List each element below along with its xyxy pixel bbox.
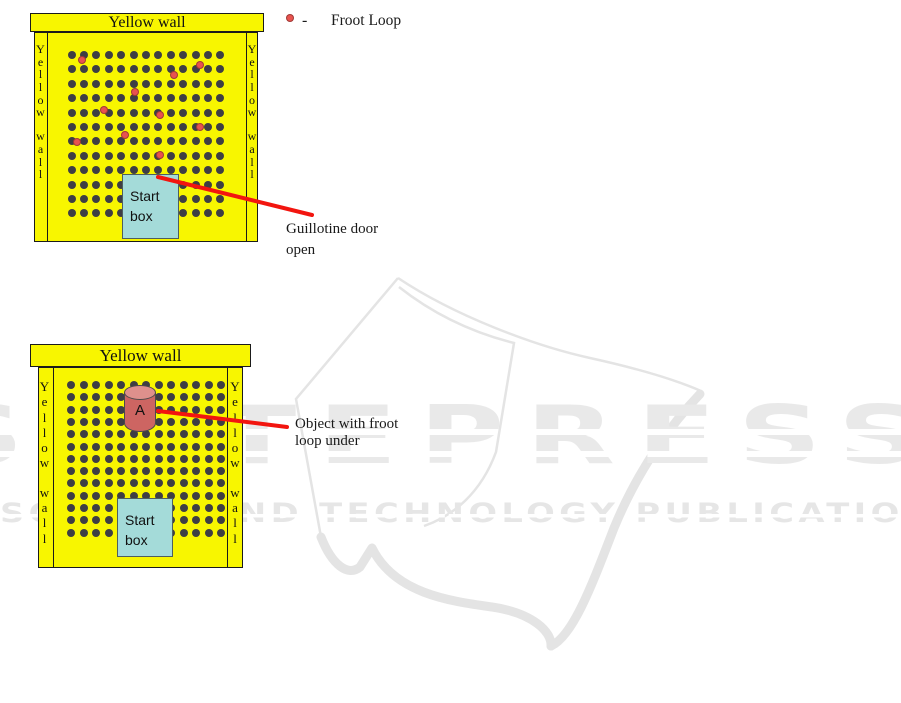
guillotine-door-annotation: Guillotine door open [286, 219, 378, 261]
froot-loop-icon [287, 15, 293, 21]
annotation-line1: Object with froot [295, 416, 398, 433]
labels-layer: - Froot Loop Guillotine door open Object… [0, 0, 901, 703]
annotation-line2: open [286, 240, 378, 261]
annotation-line1: Guillotine door [286, 219, 378, 240]
figure-canvas: SCITEPRESS SCIENCE AND TECHNOLOGY PUBLIC… [0, 0, 901, 703]
annotation-line2: loop under [295, 433, 398, 450]
object-annotation: Object with froot loop under [295, 416, 398, 449]
legend-label: Froot Loop [331, 12, 401, 30]
legend-dash: - [302, 12, 307, 30]
